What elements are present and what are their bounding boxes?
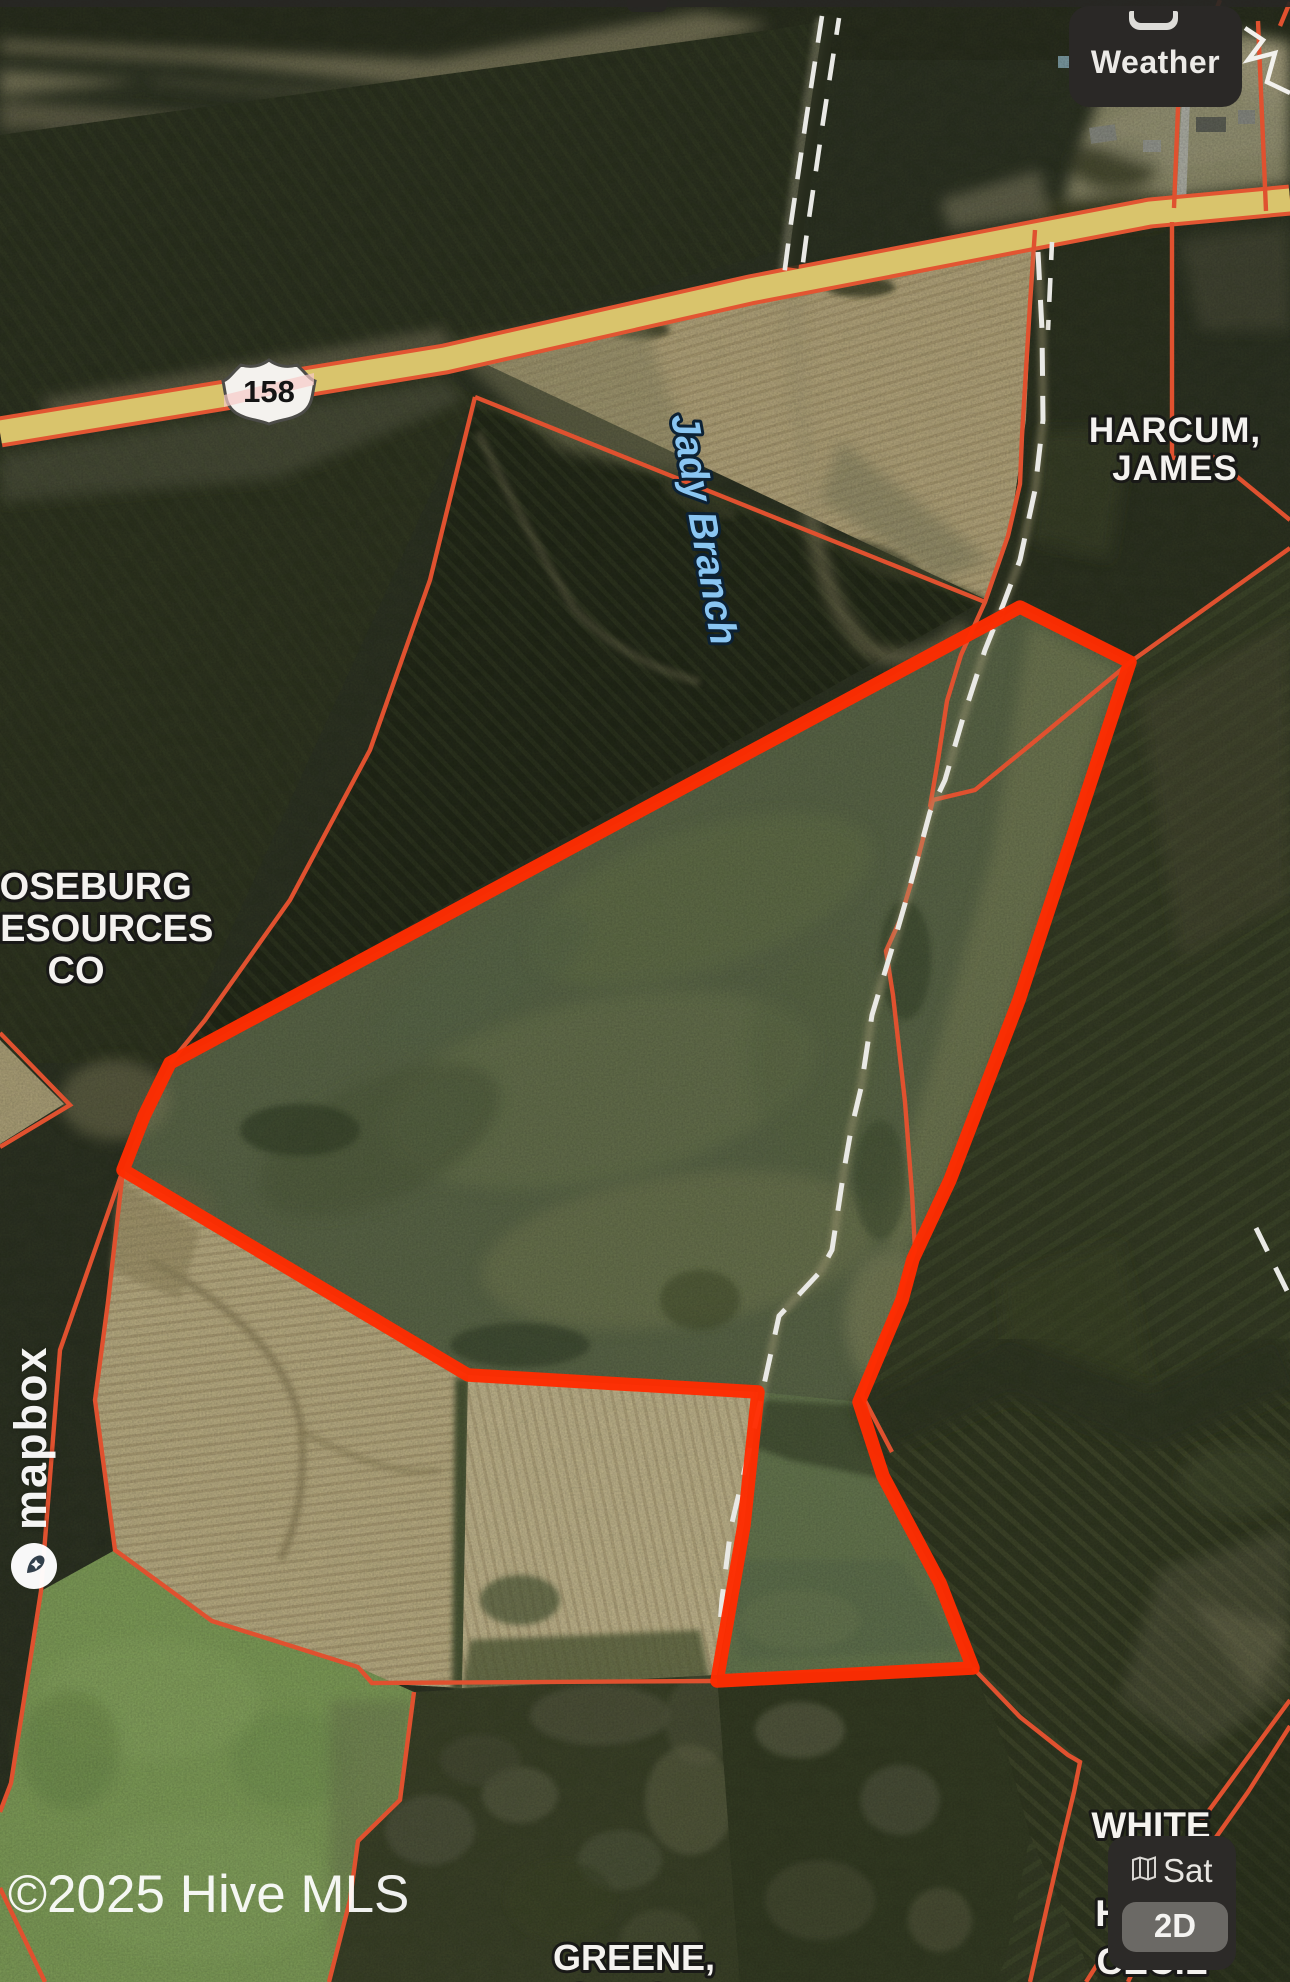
svg-text:CO: CO bbox=[48, 950, 105, 992]
svg-text:CAROL: CAROL bbox=[566, 1977, 694, 1982]
svg-text:158: 158 bbox=[243, 374, 295, 409]
svg-text:HARCUM,: HARCUM, bbox=[1089, 411, 1261, 450]
svg-text:RESOURCES: RESOURCES bbox=[0, 908, 213, 950]
svg-text:JAMES: JAMES bbox=[1112, 449, 1238, 488]
svg-text:ROSEBURG: ROSEBURG bbox=[0, 866, 192, 908]
svg-text:GREENE,: GREENE, bbox=[553, 1937, 715, 1978]
